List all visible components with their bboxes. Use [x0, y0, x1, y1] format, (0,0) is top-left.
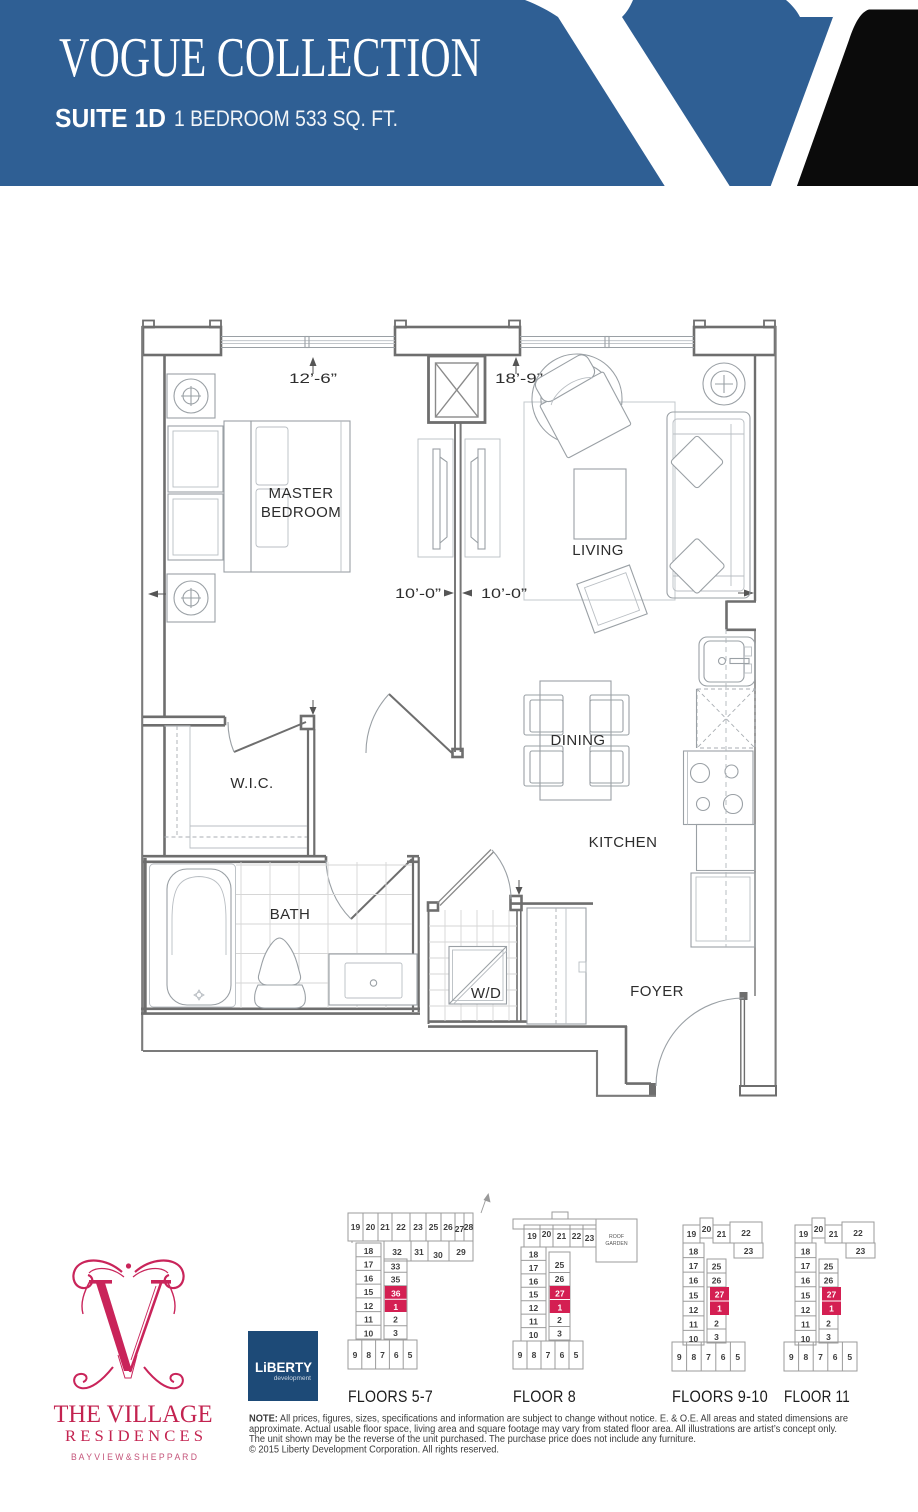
- svg-text:B A Y V I E W & S H E P P: B A Y V I E W & S H E P P A R D: [71, 1452, 197, 1462]
- svg-text:33: 33: [391, 1261, 401, 1271]
- svg-text:12: 12: [689, 1305, 699, 1315]
- svg-text:9: 9: [677, 1352, 682, 1362]
- svg-text:development: development: [274, 1375, 311, 1382]
- svg-text:36: 36: [391, 1289, 401, 1299]
- svg-text:18: 18: [689, 1247, 699, 1257]
- svg-text:FLOOR 8: FLOOR 8: [513, 1388, 576, 1406]
- svg-text:6: 6: [721, 1352, 726, 1362]
- svg-text:5: 5: [847, 1352, 852, 1362]
- svg-text:GARDEN: GARDEN: [605, 1241, 627, 1247]
- svg-text:17: 17: [529, 1263, 539, 1273]
- svg-text:26: 26: [443, 1222, 453, 1232]
- svg-text:10: 10: [529, 1330, 539, 1340]
- svg-text:25: 25: [824, 1262, 834, 1272]
- svg-text:5: 5: [574, 1350, 579, 1360]
- svg-text:21: 21: [829, 1229, 839, 1239]
- svg-text:30: 30: [433, 1250, 443, 1260]
- svg-text:22: 22: [572, 1231, 582, 1241]
- svg-text:18: 18: [801, 1247, 811, 1257]
- svg-text:25: 25: [429, 1222, 439, 1232]
- svg-text:5: 5: [735, 1352, 740, 1362]
- svg-text:21: 21: [380, 1222, 390, 1232]
- svg-text:7: 7: [380, 1350, 385, 1360]
- svg-text:25: 25: [712, 1262, 722, 1272]
- svg-text:5: 5: [408, 1350, 413, 1360]
- svg-text:27: 27: [715, 1290, 725, 1300]
- svg-text:3: 3: [714, 1332, 719, 1342]
- svg-text:28: 28: [464, 1222, 474, 1232]
- svg-text:DINING: DINING: [551, 732, 606, 749]
- svg-text:BEDROOM: BEDROOM: [261, 504, 341, 521]
- svg-text:LIVING: LIVING: [572, 542, 624, 559]
- svg-text:27: 27: [827, 1290, 837, 1300]
- svg-text:23: 23: [856, 1246, 866, 1256]
- svg-text:10’-0”: 10’-0”: [395, 585, 441, 601]
- svg-text:17: 17: [364, 1260, 374, 1270]
- svg-text:6: 6: [560, 1350, 565, 1360]
- svg-text:3: 3: [826, 1332, 831, 1342]
- svg-text:10: 10: [689, 1334, 699, 1344]
- svg-text:1: 1: [393, 1302, 398, 1312]
- svg-text:8: 8: [692, 1352, 697, 1362]
- svg-text:31: 31: [414, 1247, 424, 1257]
- svg-text:9: 9: [789, 1352, 794, 1362]
- svg-text:10’-0”: 10’-0”: [481, 585, 527, 601]
- svg-text:7: 7: [546, 1350, 551, 1360]
- svg-text:22: 22: [741, 1228, 751, 1238]
- svg-text:20: 20: [366, 1222, 376, 1232]
- svg-text:R E S I D E N C E S: R E S I D E N C E S: [65, 1428, 203, 1445]
- svg-text:3: 3: [393, 1328, 398, 1338]
- svg-text:21: 21: [557, 1231, 567, 1241]
- svg-text:6: 6: [833, 1352, 838, 1362]
- svg-text:27: 27: [555, 1289, 565, 1299]
- svg-text:11: 11: [689, 1319, 698, 1329]
- svg-text:22: 22: [396, 1222, 406, 1232]
- svg-text:26: 26: [712, 1276, 722, 1286]
- svg-text:VOGUE COLLECTION: VOGUE COLLECTION: [59, 27, 481, 89]
- svg-text:W.I.C.: W.I.C.: [230, 775, 273, 792]
- svg-text:10: 10: [801, 1334, 811, 1344]
- svg-text:20: 20: [542, 1229, 552, 1239]
- svg-text:16: 16: [689, 1276, 699, 1286]
- svg-text:KITCHEN: KITCHEN: [589, 834, 658, 851]
- svg-text:11: 11: [529, 1317, 538, 1327]
- svg-text:21: 21: [717, 1229, 727, 1239]
- svg-text:20: 20: [702, 1224, 712, 1234]
- svg-text:1 BEDROOM 533 SQ. FT.: 1 BEDROOM 533 SQ. FT.: [174, 106, 398, 131]
- svg-text:20: 20: [814, 1224, 824, 1234]
- svg-text:18: 18: [364, 1246, 374, 1256]
- svg-text:32: 32: [392, 1247, 402, 1257]
- svg-text:11: 11: [364, 1315, 373, 1325]
- svg-text:8: 8: [532, 1350, 537, 1360]
- svg-text:23: 23: [585, 1233, 595, 1243]
- svg-text:18: 18: [529, 1249, 539, 1259]
- svg-text:19: 19: [687, 1229, 697, 1239]
- svg-text:MASTER: MASTER: [269, 485, 334, 502]
- svg-text:THE VILLAGE: THE VILLAGE: [54, 1401, 213, 1428]
- svg-text:26: 26: [555, 1274, 565, 1284]
- svg-text:8: 8: [804, 1352, 809, 1362]
- svg-text:1: 1: [829, 1304, 834, 1314]
- svg-text:FOYER: FOYER: [630, 983, 684, 1000]
- svg-text:16: 16: [364, 1273, 374, 1283]
- svg-text:2: 2: [557, 1315, 562, 1325]
- svg-text:35: 35: [391, 1275, 401, 1285]
- svg-text:BATH: BATH: [270, 906, 311, 923]
- svg-text:26: 26: [824, 1276, 834, 1286]
- svg-text:12: 12: [801, 1305, 811, 1315]
- svg-text:23: 23: [744, 1246, 754, 1256]
- svg-text:16: 16: [529, 1276, 539, 1286]
- svg-text:16: 16: [801, 1276, 811, 1286]
- svg-text:23: 23: [413, 1222, 423, 1232]
- svg-text:10: 10: [364, 1328, 374, 1338]
- svg-text:15: 15: [689, 1290, 699, 1300]
- svg-text:19: 19: [527, 1231, 537, 1241]
- svg-text:SUITE 1D: SUITE 1D: [55, 103, 166, 133]
- svg-text:15: 15: [801, 1290, 811, 1300]
- svg-text:FLOORS 9-10: FLOORS 9-10: [672, 1388, 768, 1406]
- svg-text:12: 12: [529, 1303, 539, 1313]
- svg-text:© 2015 Liberty Development Cor: © 2015 Liberty Development Corporation. …: [249, 1444, 499, 1455]
- svg-text:19: 19: [799, 1229, 809, 1239]
- svg-text:15: 15: [364, 1287, 374, 1297]
- svg-text:LiBERTY: LiBERTY: [255, 1359, 313, 1375]
- svg-text:2: 2: [393, 1315, 398, 1325]
- svg-text:7: 7: [818, 1352, 823, 1362]
- svg-text:7: 7: [706, 1352, 711, 1362]
- svg-text:19: 19: [351, 1222, 361, 1232]
- svg-text:2: 2: [826, 1319, 831, 1329]
- svg-text:1: 1: [558, 1303, 563, 1313]
- svg-text:W/D: W/D: [471, 985, 501, 1002]
- svg-text:1: 1: [717, 1304, 722, 1314]
- svg-text:9: 9: [353, 1350, 358, 1360]
- svg-text:15: 15: [529, 1290, 539, 1300]
- svg-text:6: 6: [394, 1350, 399, 1360]
- svg-text:9: 9: [518, 1350, 523, 1360]
- svg-text:29: 29: [456, 1247, 466, 1257]
- svg-text:8: 8: [366, 1350, 371, 1360]
- svg-text:FLOORS 5-7: FLOORS 5-7: [348, 1388, 433, 1406]
- svg-text:25: 25: [555, 1260, 565, 1270]
- svg-text:22: 22: [853, 1228, 863, 1238]
- svg-text:17: 17: [689, 1261, 699, 1271]
- svg-text:12: 12: [364, 1301, 374, 1311]
- svg-text:11: 11: [801, 1319, 810, 1329]
- svg-text:2: 2: [714, 1319, 719, 1329]
- svg-text:17: 17: [801, 1261, 811, 1271]
- svg-text:FLOOR 11: FLOOR 11: [784, 1388, 850, 1406]
- svg-text:ROOF: ROOF: [609, 1234, 624, 1240]
- svg-text:3: 3: [557, 1329, 562, 1339]
